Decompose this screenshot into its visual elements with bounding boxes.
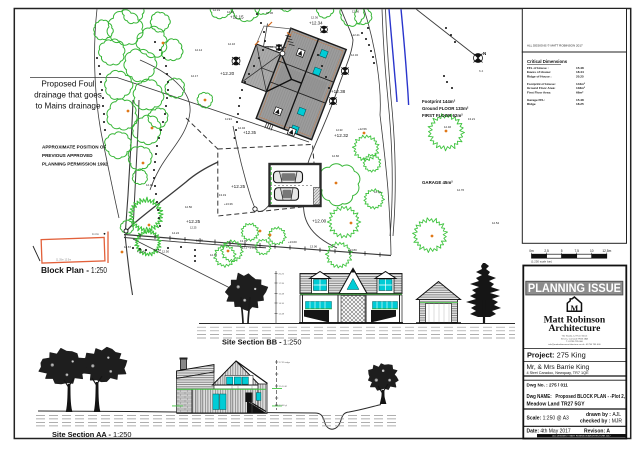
svg-text:(1:250 scale bar): (1:250 scale bar) [531,260,552,264]
svg-text:12.17: 12.17 [191,74,198,78]
svg-text:12.54: 12.54 [492,221,499,225]
svg-text:15.48: 15.48 [576,66,584,70]
svg-text:Site Section AA -: Site Section AA - [52,430,112,439]
svg-text:St Ives, Cornwall TR26 1AB: St Ives, Cornwall TR26 1AB [561,337,589,340]
svg-text:6.4: 6.4 [479,69,484,73]
svg-text:+12.38: +12.38 [331,89,346,94]
svg-text:+12.56: +12.56 [358,127,367,131]
svg-text:13.19: 13.19 [219,193,226,197]
svg-text:15.48: 15.48 [576,98,584,102]
svg-text:Block Plan -: Block Plan - [41,266,89,275]
svg-text:18.25: 18.25 [576,102,584,106]
svg-text:Scale: 1:250 @ A3: Scale: 1:250 @ A3 [527,416,570,422]
svg-text:0m: 0m [529,249,534,253]
svg-text:Ground FLOOR 133m²: Ground FLOOR 133m² [422,106,469,111]
svg-text:FIRST FLOOR 62m²: FIRST FLOOR 62m² [422,113,463,118]
svg-text:info@mattrobinsonarchitecture.: info@mattrobinsonarchitecture.co.uk • 01… [548,343,601,346]
svg-text:12.16: 12.16 [227,10,234,14]
svg-text:13.05: 13.05 [240,239,247,243]
svg-text:Site Section BB -: Site Section BB - [222,338,282,347]
svg-text:to Mains drainage: to Mains drainage [35,102,101,111]
svg-text:17.35 ridge: 17.35 ridge [279,361,291,364]
svg-text:11.94: 11.94 [225,117,232,121]
svg-text:12.04: 12.04 [267,45,274,49]
svg-text:10: 10 [590,249,594,253]
svg-text:1:250: 1:250 [283,338,302,347]
svg-text:1:250: 1:250 [91,266,107,275]
svg-text:12,5m: 12,5m [602,249,611,253]
svg-text:15.48: 15.48 [279,294,285,296]
svg-text:Ridge: Ridge [527,102,536,106]
svg-text:4 Stret Caradoc, Newquay, TR7: 4 Stret Caradoc, Newquay, TR7 1QE [527,371,590,375]
svg-text:12.16: 12.16 [228,42,235,46]
svg-text:11.0m: 11.0m [92,232,99,236]
svg-text:+12.25: +12.25 [186,219,201,224]
svg-text:Meadow Land TR27 5GY: Meadow Land TR27 5GY [527,402,586,408]
svg-text:Mr, & Mrs Barrie King: Mr, & Mrs Barrie King [527,364,590,371]
svg-text:11.35m 12.5m: 11.35m 12.5m [56,259,71,262]
svg-text:14.10: 14.10 [279,303,285,305]
svg-text:12.14: 12.14 [195,48,202,52]
svg-text:Dwg NAME: Proposed BLOCK PLA: Dwg NAME: Proposed BLOCK PLAN - -Plot 2, [527,394,626,400]
svg-text:12.70: 12.70 [374,190,381,194]
svg-text:13.06: 13.06 [310,245,317,249]
svg-text:+12.20: +12.20 [220,71,235,76]
svg-text:drainage that goes: drainage that goes [34,91,102,100]
svg-text:Architecture: Architecture [548,323,601,334]
svg-text:+12.34: +12.34 [309,21,323,26]
svg-text:+12.41: +12.41 [351,33,360,37]
svg-text:12.52: 12.52 [154,248,161,252]
svg-text:checked by : MJR: checked by : MJR [580,419,622,425]
svg-text:12.04: 12.04 [238,126,245,130]
svg-text:drawn by : AJL: drawn by : AJL [586,412,621,418]
svg-text:PREVIOUS APPROVED: PREVIOUS APPROVED [42,153,93,158]
svg-text:7,5: 7,5 [574,249,579,253]
svg-text:Revison: A: Revison: A [584,429,610,435]
svg-text:20.25: 20.25 [576,75,584,79]
svg-text:+12.15: +12.15 [230,15,244,20]
svg-text:12.66: 12.66 [332,154,339,158]
svg-text:+12.25: +12.25 [231,184,246,189]
svg-text:12.46: 12.46 [444,125,451,129]
svg-text:+12.43: +12.43 [137,250,146,254]
svg-text:Footprint of House:: Footprint of House: [527,82,556,86]
svg-text:Date: 4th May 2017: Date: 4th May 2017 [527,429,571,435]
svg-text:17.35: 17.35 [279,283,285,285]
svg-text:14.24: 14.24 [172,231,179,235]
svg-text:First Floor Area:: First Floor Area: [527,91,551,95]
svg-text:ALL DESIGNS © MATT ROBINSON AR: ALL DESIGNS © MATT ROBINSON ARCHITECTURE… [552,435,611,438]
svg-text:The Studio, 12 Fore Street: The Studio, 12 Fore Street [562,335,588,338]
svg-text:Ground Floor Area:: Ground Floor Area: [527,86,555,90]
svg-text:Project: 275 King: Project: 275 King [527,351,586,360]
svg-text:12.76: 12.76 [457,188,464,192]
svg-text:12.47: 12.47 [210,253,217,257]
svg-text:12.36: 12.36 [311,16,318,20]
svg-text:13.25: 13.25 [196,239,203,243]
svg-text:+13.1 - 1.30m: +13.1 - 1.30m [240,246,258,250]
svg-text:+12.00: +12.00 [312,219,327,224]
svg-text:2,5: 2,5 [544,249,549,253]
svg-text:12.33: 12.33 [336,128,343,132]
svg-text:+13.80: +13.80 [348,248,357,252]
svg-text:12.50: 12.50 [185,205,192,209]
svg-text:13.21: 13.21 [468,117,475,121]
svg-text:Ridge of House :: Ridge of House : [527,75,552,79]
svg-text:M: M [571,304,579,313]
svg-text:+13.36: +13.36 [224,202,233,206]
svg-text:GARAGE 45m²: GARAGE 45m² [422,180,453,185]
svg-text:+12.35: +12.35 [243,130,257,135]
svg-text:T: 01736 795 000: T: 01736 795 000 [566,341,584,343]
svg-text:12.32: 12.32 [351,53,358,57]
svg-text:15.10 ffl: 15.10 ffl [279,386,287,388]
svg-text:12.48: 12.48 [279,314,285,316]
svg-text:+13.60: +13.60 [288,240,297,244]
svg-text:FFL of House :: FFL of House : [527,66,549,70]
svg-text:1:250: 1:250 [113,430,132,439]
svg-text:20.25: 20.25 [279,274,285,276]
svg-text:ALL DESIGNS © MATT ROBINSON 20: ALL DESIGNS © MATT ROBINSON 2017 [527,44,583,48]
svg-text:PLANNING PERMISSION 1992: PLANNING PERMISSION 1992 [42,162,108,167]
svg-text:Garage FFL:: Garage FFL: [527,98,545,102]
svg-text:144m²: 144m² [576,82,585,86]
svg-text:Eaves of House:: Eaves of House: [527,70,551,74]
svg-text:18.44: 18.44 [576,70,584,74]
svg-text:N: N [483,51,486,56]
svg-text:12.50: 12.50 [162,250,169,254]
svg-text:12.25: 12.25 [190,226,197,230]
svg-text:12.45: 12.45 [146,183,153,187]
svg-text:133m²: 133m² [576,86,585,90]
svg-text:APPROXIMATE POSITION OF: APPROXIMATE POSITION OF [42,145,106,150]
svg-text:66m²: 66m² [576,91,583,95]
svg-text:Footprint 144m²: Footprint 144m² [422,99,456,104]
svg-text:PLANNING ISSUE: PLANNING ISSUE [528,281,621,295]
svg-text:Dwg No. : 275 / 011: Dwg No. : 275 / 011 [527,383,569,388]
svg-text:12.48 gl: 12.48 gl [279,405,287,407]
svg-text:12.36: 12.36 [352,10,359,14]
svg-text:Critical Dimensions: Critical Dimensions [527,59,568,64]
svg-text:12.36: 12.36 [266,11,273,15]
svg-text:Proposed Foul: Proposed Foul [41,80,94,89]
svg-text:5: 5 [561,249,563,253]
svg-text:12.67: 12.67 [124,245,131,249]
svg-text:+12.32: +12.32 [334,133,349,138]
